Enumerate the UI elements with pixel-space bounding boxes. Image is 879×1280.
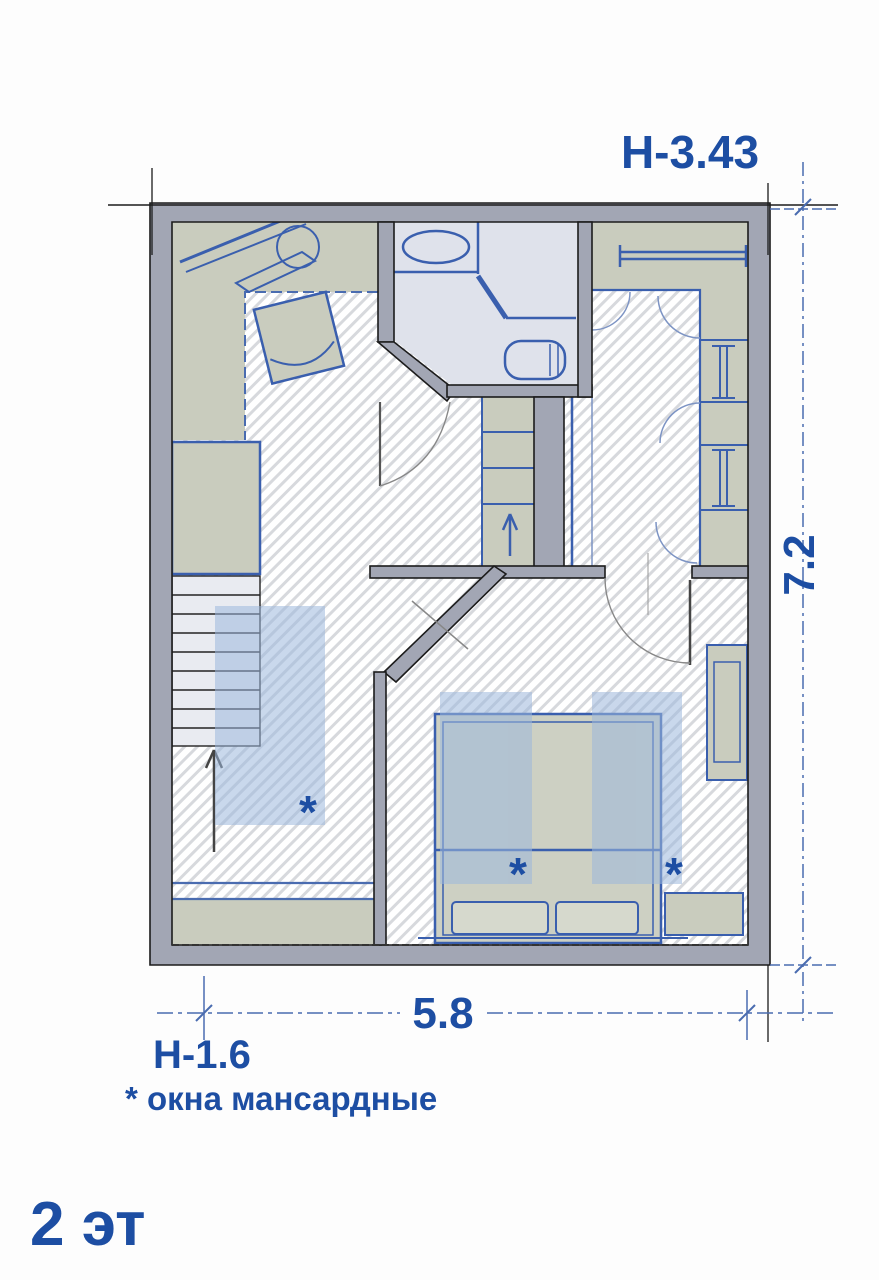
pillow-icon — [556, 902, 638, 934]
width-dimension-label: 5.8 — [412, 989, 473, 1038]
skylight-marker-icon: * — [665, 848, 683, 900]
floor-title-label: 2 эт — [30, 1190, 146, 1259]
floor-plan-drawing: Н-3.43 7.2 5.8 Н-1.6 * окна мансардные 2… — [0, 0, 879, 1280]
height-lower-label: Н-1.6 — [153, 1033, 251, 1077]
height-upper-label: Н-3.43 — [621, 126, 759, 178]
skylight-marker-icon: * — [509, 848, 527, 900]
skylight-marker-icon: * — [299, 786, 317, 838]
dresser — [707, 645, 747, 780]
pillow-icon — [452, 902, 548, 934]
closet — [172, 442, 260, 574]
floor-plan-page: Н-3.43 7.2 5.8 Н-1.6 * окна мансардные 2… — [0, 0, 879, 1280]
depth-dimension-label: 7.2 — [775, 534, 824, 595]
skylight-note-label: * окна мансардные — [125, 1080, 437, 1117]
